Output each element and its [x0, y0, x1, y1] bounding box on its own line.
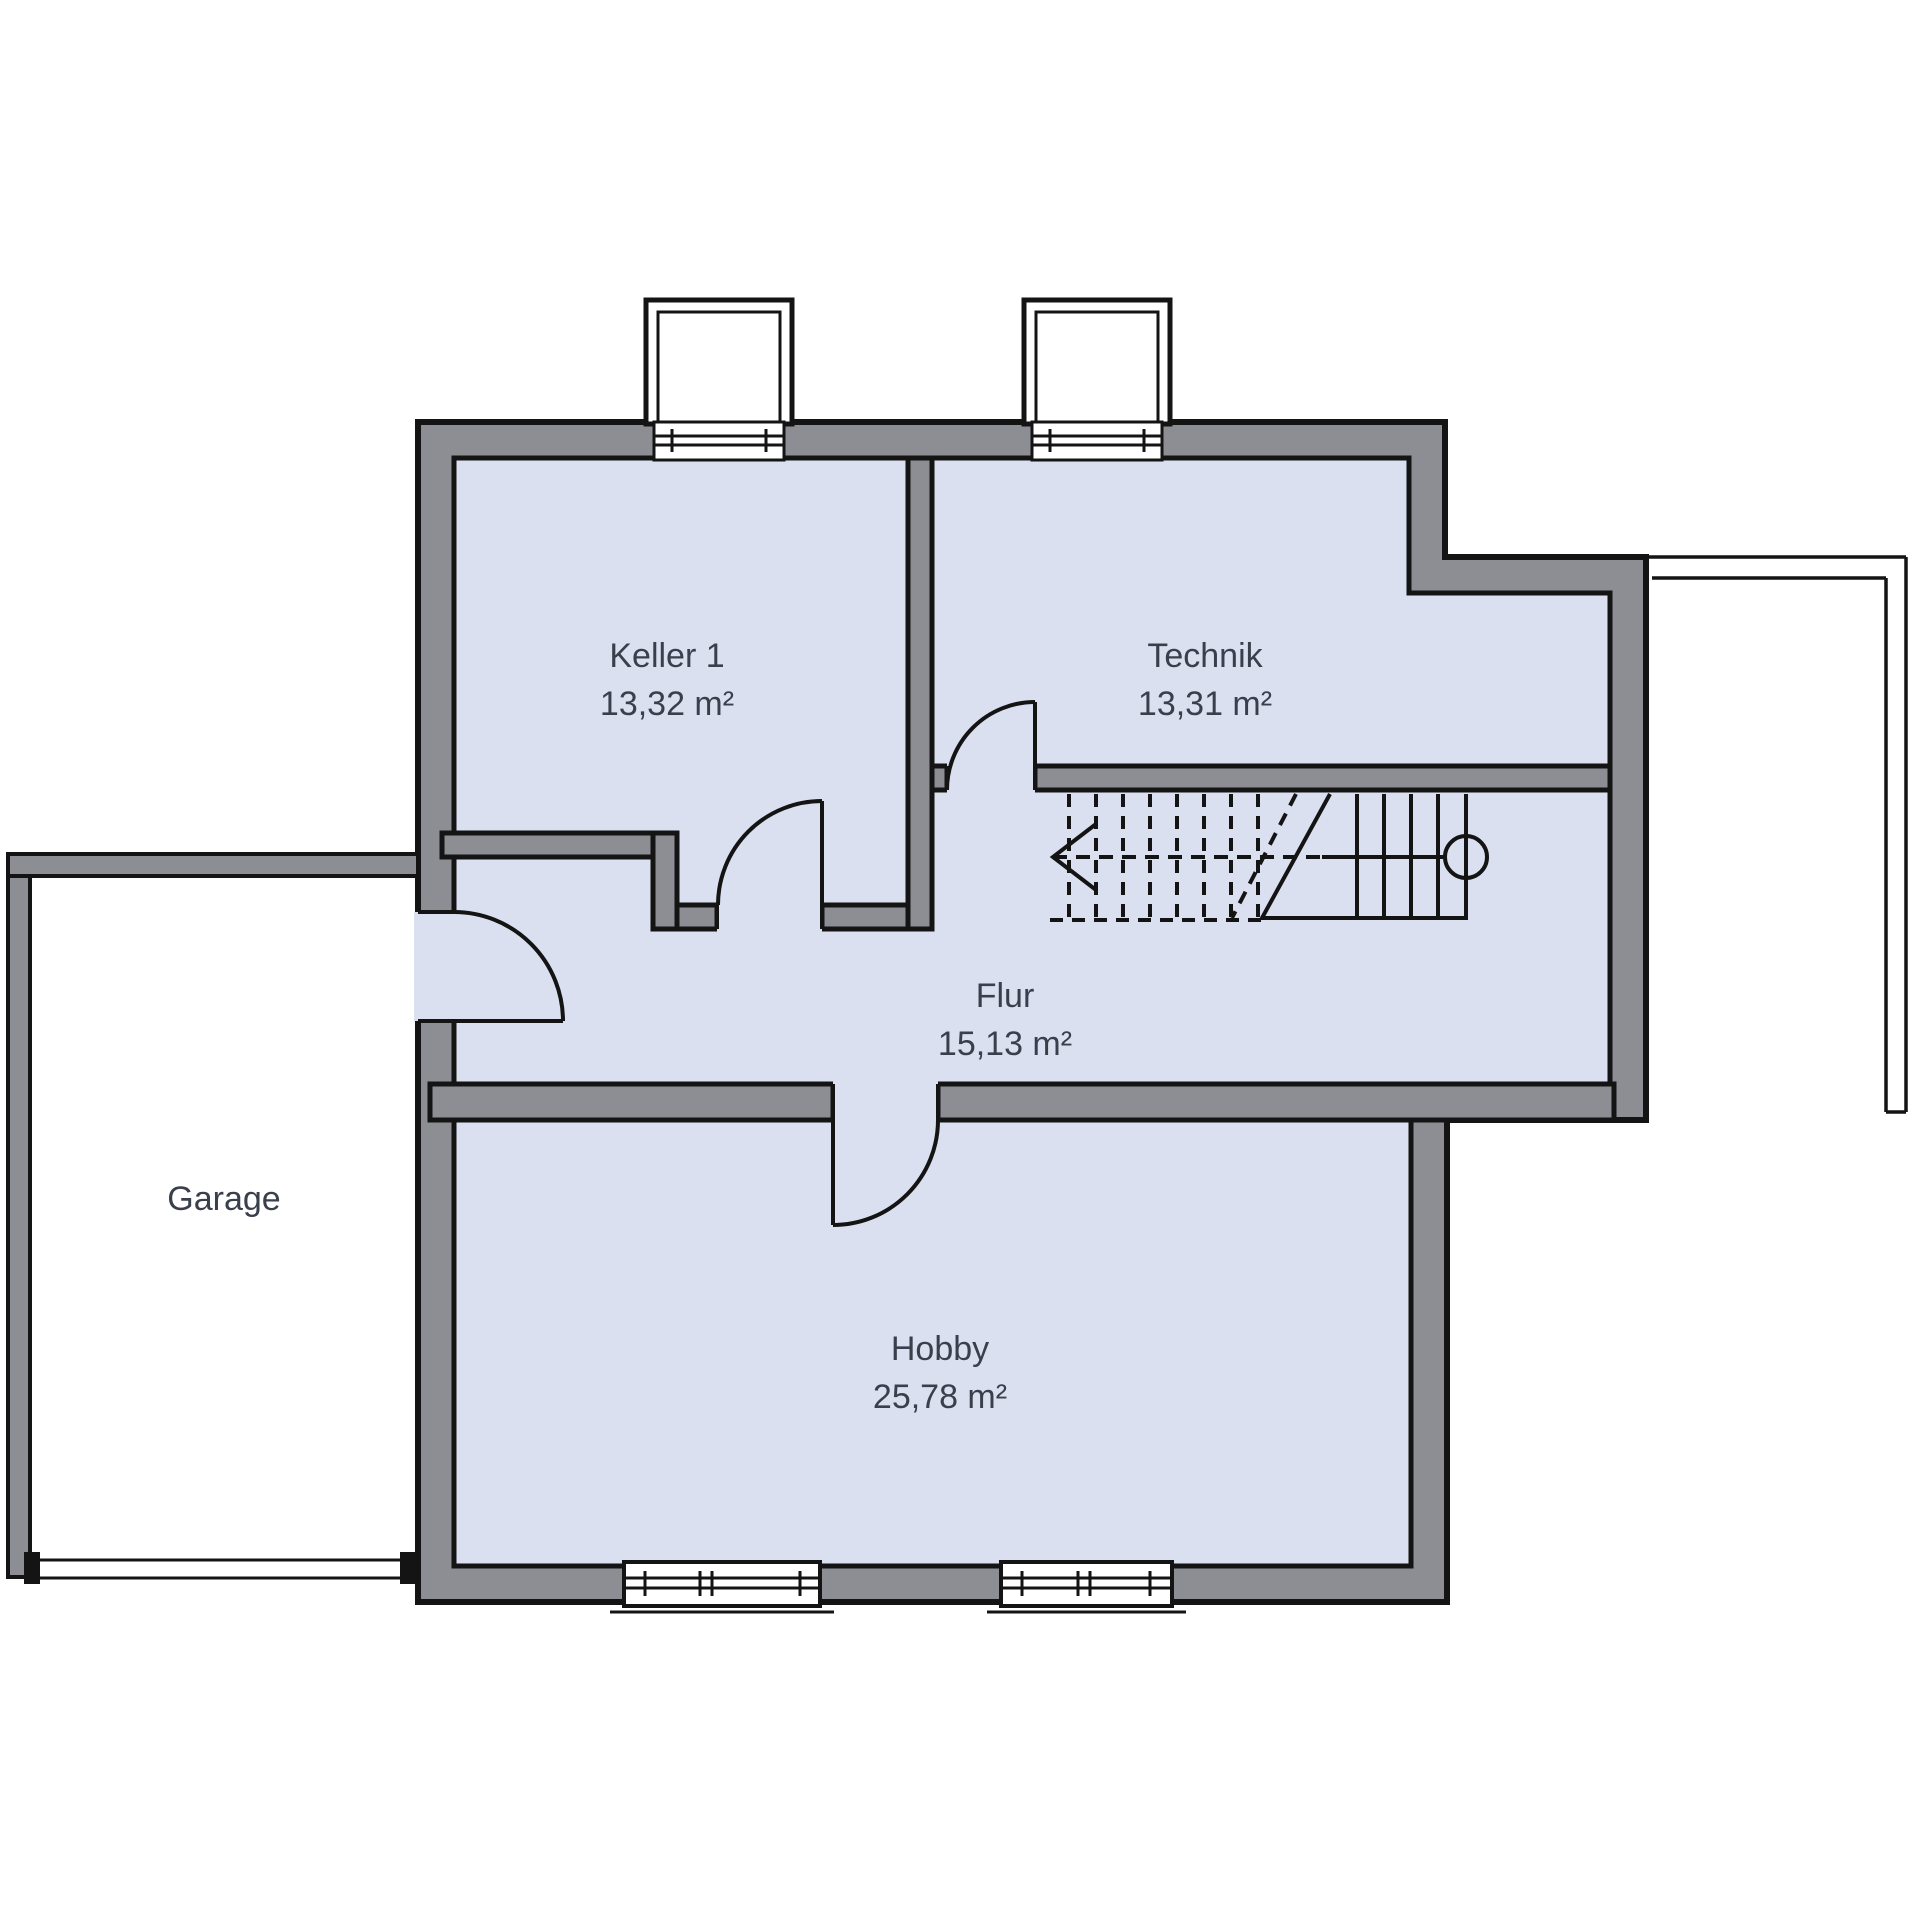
- window-hobby-left: [610, 1562, 834, 1612]
- garage-wall-top: [8, 854, 418, 876]
- label-keller1-area: 13,32 m²: [600, 685, 734, 723]
- exterior-terrace-outline: [1646, 557, 1906, 1112]
- door-gap-hobby: [833, 1080, 938, 1124]
- label-keller1-name: Keller 1: [609, 637, 724, 675]
- label-hobby-name: Hobby: [891, 1330, 989, 1368]
- wall-keller1-door-jamb-foot: [677, 905, 717, 929]
- window-technik: [1024, 300, 1170, 460]
- wall-technik-bottom-stairwell: [1035, 766, 1610, 790]
- wall-flur-hobby-right: [938, 1084, 1614, 1120]
- label-hobby-area: 25,78 m²: [873, 1378, 1007, 1416]
- label-flur-area: 15,13 m²: [938, 1025, 1072, 1063]
- label-flur-name: Flur: [976, 977, 1035, 1015]
- wall-flur-hobby-left: [430, 1084, 833, 1120]
- label-technik-name: Technik: [1147, 637, 1263, 675]
- door-gap-garage-entry: [414, 912, 458, 1021]
- wall-keller1-bottom-left: [442, 833, 677, 857]
- floorplan-page: Keller 1 13,32 m² Technik 13,31 m² Flur …: [0, 0, 1920, 1920]
- wall-keller1-step-pier: [653, 833, 677, 929]
- door-gap-technik: [947, 762, 1035, 794]
- garage-structure: [8, 854, 418, 1584]
- wall-keller1-bottom-right: [822, 905, 908, 929]
- garage-wall-left: [8, 854, 30, 1577]
- garage-door: [24, 1552, 416, 1584]
- label-technik-area: 13,31 m²: [1138, 685, 1272, 723]
- window-keller1: [646, 300, 792, 460]
- label-garage: Garage: [167, 1180, 280, 1218]
- door-gap-keller1: [717, 901, 822, 933]
- wall-partition-keller1-technik: [908, 458, 932, 929]
- floorplan-drawing: Keller 1 13,32 m² Technik 13,31 m² Flur …: [0, 0, 1920, 1920]
- wall-technik-door-stub: [932, 766, 947, 790]
- window-hobby-right: [987, 1562, 1186, 1612]
